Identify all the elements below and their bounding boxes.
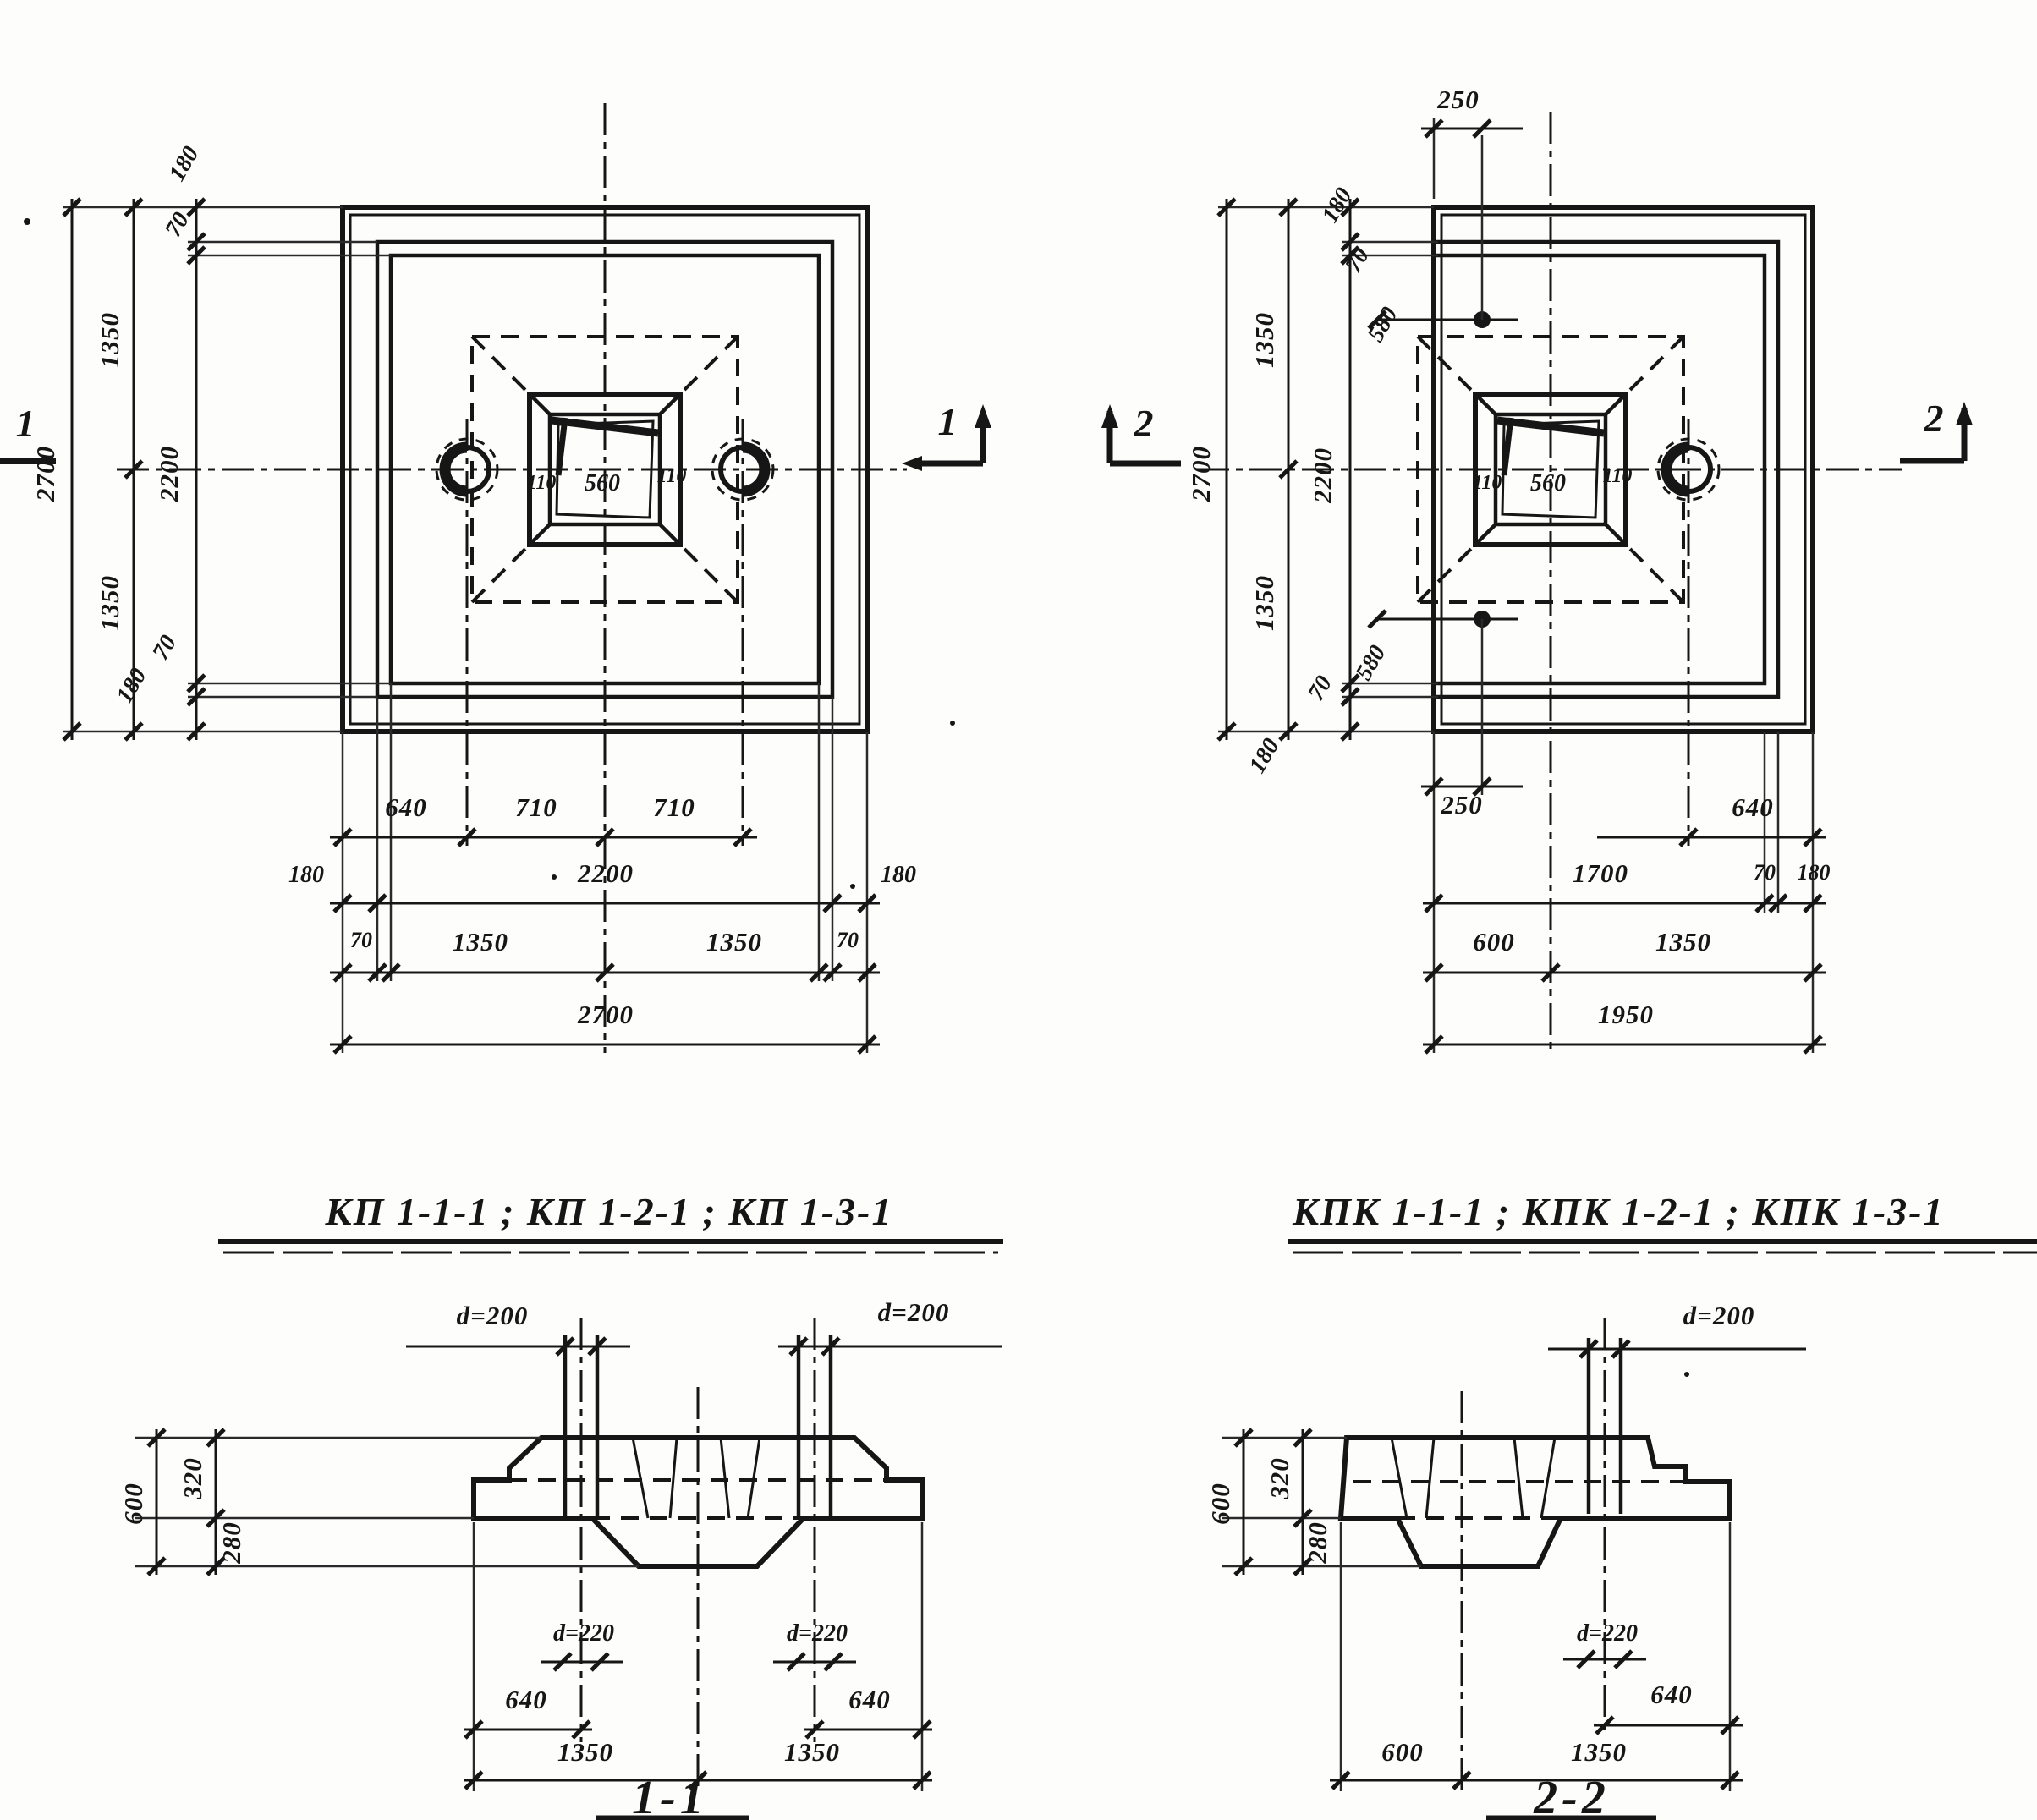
kpk-dim-250t: 250 [1436,85,1480,114]
kp-dim-180r: 180 [881,862,916,888]
s22-600b: 600 [1381,1737,1424,1767]
kp-dim-180t: 180 [164,142,205,186]
kpk-dim-1350h: 1350 [1655,927,1711,957]
kp-marker-right-label: 1 [938,400,958,443]
s11-d200-right: d=200 [878,1297,950,1327]
kp-socket-110r: 110 [657,465,687,487]
section-2-2-body [1341,1318,1730,1791]
kp-hole-right [712,439,773,500]
s22-640: 640 [1650,1680,1693,1709]
kp-section-marker-right: 1 [902,400,991,471]
kp-dim-1350t: 1350 [95,312,124,368]
kp-dim-2200v: 2200 [154,446,184,502]
kp-dim-180l: 180 [288,862,324,888]
s11-d220-right: d=220 [787,1620,848,1647]
kpk-marker-right-label: 2 [1924,397,1944,440]
kpk-dim-600: 600 [1473,927,1515,957]
s11-1350l: 1350 [557,1737,613,1767]
kp-centerlines [117,103,907,1053]
kpk-dimension-ticks [1218,120,1821,1053]
s22-600v: 600 [1205,1483,1235,1525]
kpk-socket-110l: 110 [1473,472,1502,494]
s11-d220-left: d=220 [553,1620,614,1647]
kpk-section-marker-right: 2 [1900,397,1973,461]
s11-600: 600 [118,1483,148,1525]
kp-extension-lines [63,207,867,1053]
s22-1350: 1350 [1571,1737,1627,1767]
kp-socket-560: 560 [585,470,620,496]
kpk-dim-70b: 70 [1303,672,1337,705]
kpk-dim-1350b: 1350 [1249,575,1279,631]
s22-title: 2-2 [1533,1772,1610,1820]
blueprint-svg: 1 1 [0,0,2037,1820]
kp-dim-710r: 710 [653,792,695,822]
kpk-dimension-lines [1227,129,1826,1044]
s11-1350r: 1350 [784,1737,840,1767]
kp-dim-70r: 70 [837,928,859,952]
s22-280: 280 [1303,1521,1332,1565]
kpk-dim-70: 70 [1754,860,1776,885]
kp-title: КП 1-1-1 ; КП 1-2-1 ; КП 1-3-1 [325,1190,893,1233]
section-1-1-body [474,1318,922,1791]
kpk-dim-2700v: 2700 [1186,446,1216,502]
kpk-socket-560: 560 [1530,470,1566,496]
kpk-dim-250b: 250 [1440,790,1483,820]
kpk-dim-1700: 1700 [1573,858,1628,888]
s11-320: 320 [178,1457,207,1500]
kp-marker-left-label: 1 [16,402,36,445]
kpk-dimension-labels: 250 250 2700 1350 1350 2200 180 70 580 1… [1186,85,1831,1029]
kpk-dim-180b: 180 [1244,734,1285,778]
kp-dim-2200h: 2200 [577,858,634,888]
kpk-extension-lines [1218,118,1813,1053]
kpk-section-marker-left: 2 [1101,402,1181,463]
kpk-marker-left-label: 2 [1134,402,1154,445]
s11-d200-left: d=200 [457,1301,529,1330]
kp-dim-1350hl: 1350 [453,927,508,957]
section-1-1-labels: d=200 d=200 d=220 d=220 600 320 280 640 … [118,1297,949,1820]
kpk-dim-1350t: 1350 [1249,312,1279,368]
kp-dim-640: 640 [385,792,427,822]
kp-dim-2700v: 2700 [30,446,60,502]
kpk-socket-110r: 110 [1603,465,1633,487]
kpk-dim-580t: 580 [1363,303,1403,347]
kp-dim-70b: 70 [147,631,182,665]
kp-dim-2700h: 2700 [577,1000,634,1029]
kp-dim-70l: 70 [350,928,372,952]
s11-280: 280 [217,1521,246,1565]
kp-dim-710l: 710 [515,792,557,822]
kpk-centerlines [1197,112,1902,1053]
kpk-title: КПК 1-1-1 ; КПК 1-2-1 ; КПК 1-3-1 [1292,1190,1945,1233]
kpk-dim-180: 180 [1798,860,1831,885]
kpk-dim-640: 640 [1732,792,1774,822]
kp-dim-1350b: 1350 [95,575,124,631]
drawing-sheet: 1 1 [0,0,2037,1820]
section-2-2-labels: d=200 d=220 600 320 280 640 600 1350 2-2 [1205,1301,1754,1820]
s22-320: 320 [1265,1457,1294,1500]
kpk-dim-2200v: 2200 [1308,447,1337,504]
kp-dimension-lines [72,199,880,1044]
kp-hole-left [436,439,497,500]
kp-dim-180b: 180 [112,664,152,708]
s11-title: 1-1 [632,1772,708,1820]
kp-socket-110l: 110 [527,472,557,494]
s22-d220: d=220 [1577,1620,1638,1647]
kp-dimension-ticks [63,199,876,1053]
plan-titles: КП 1-1-1 ; КП 1-2-1 ; КП 1-3-1 КПК 1-1-1… [218,1190,2037,1253]
s11-640l: 640 [505,1685,547,1714]
s11-640r: 640 [848,1685,891,1714]
section-1-1-dimensions [135,1338,1002,1791]
s22-d200: d=200 [1683,1301,1755,1330]
kp-dim-1350hr: 1350 [706,927,762,957]
kpk-dim-1950: 1950 [1598,1000,1654,1029]
